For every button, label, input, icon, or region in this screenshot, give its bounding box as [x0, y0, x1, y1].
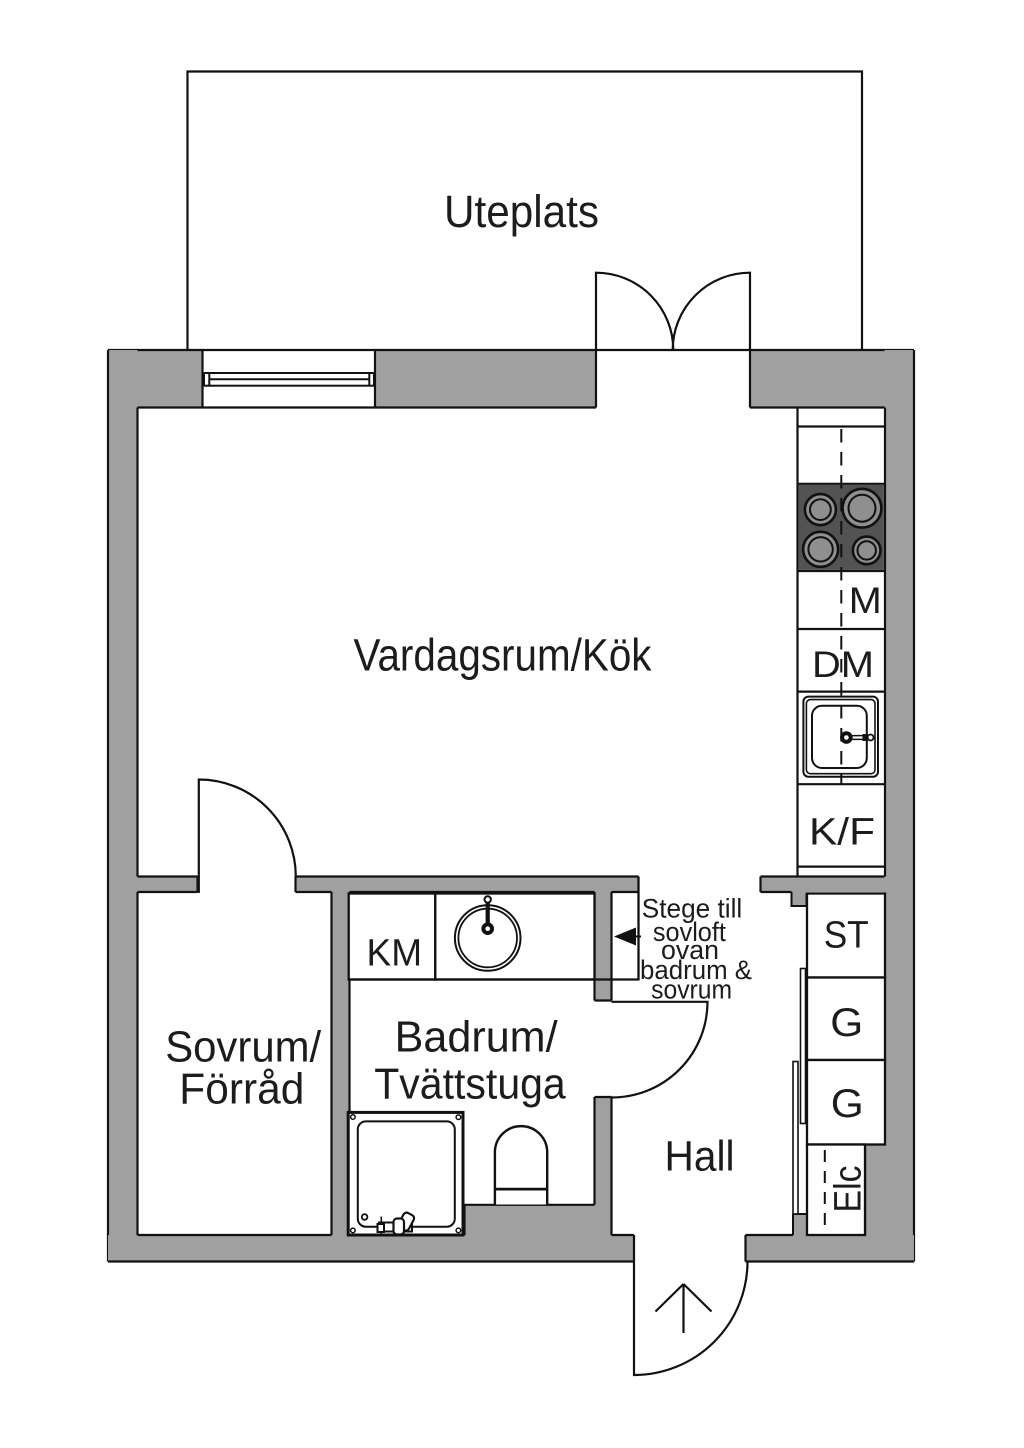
svg-text:M: M: [849, 580, 882, 621]
svg-text:Elc: Elc: [828, 1166, 870, 1213]
svg-text:ST: ST: [824, 915, 869, 957]
svg-text:Uteplats: Uteplats: [444, 186, 599, 237]
svg-text:Tvättstuga: Tvättstuga: [374, 1060, 566, 1109]
svg-text:K/F: K/F: [809, 812, 875, 854]
svg-text:Vardagsrum/Kök: Vardagsrum/Kök: [354, 629, 652, 680]
svg-text:G: G: [830, 1001, 863, 1045]
svg-text:Badrum/: Badrum/: [395, 1013, 559, 1062]
svg-text:Förråd: Förråd: [179, 1065, 304, 1114]
svg-text:Hall: Hall: [665, 1133, 735, 1181]
svg-text:sovrum: sovrum: [651, 975, 732, 1005]
svg-text:DM: DM: [812, 644, 874, 685]
svg-text:KM: KM: [367, 932, 423, 974]
svg-text:G: G: [831, 1082, 864, 1126]
